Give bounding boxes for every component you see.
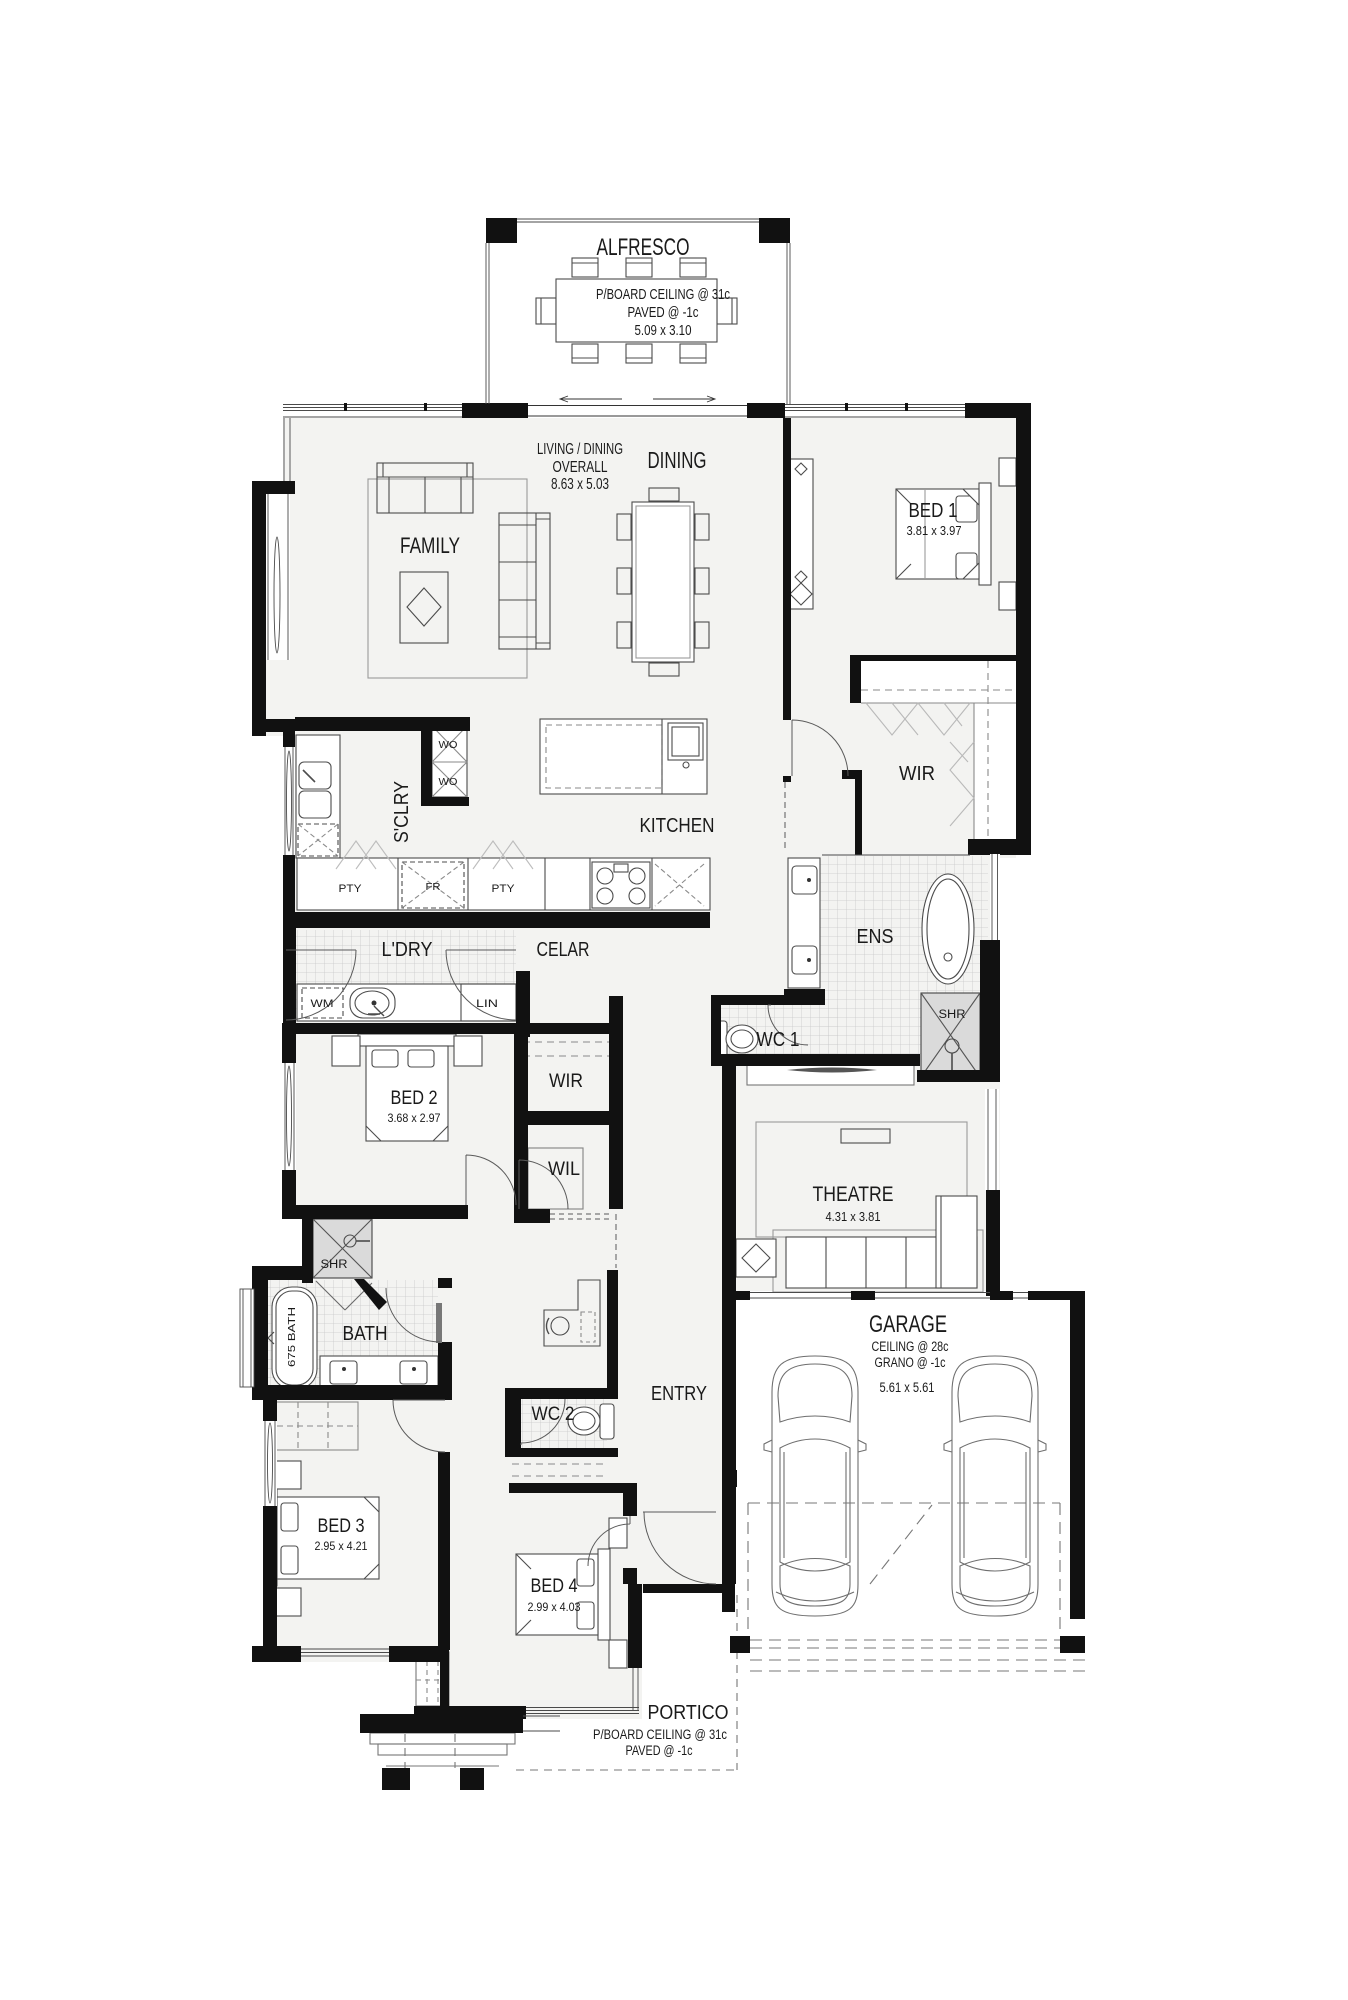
svg-text:4.31 x 3.81: 4.31 x 3.81 bbox=[826, 1210, 881, 1224]
svg-text:BED 3: BED 3 bbox=[318, 1516, 365, 1537]
svg-text:ENS: ENS bbox=[857, 926, 894, 948]
svg-text:675 BATH: 675 BATH bbox=[286, 1307, 298, 1367]
svg-text:OVERALL: OVERALL bbox=[553, 459, 608, 476]
svg-text:5.61 x 5.61: 5.61 x 5.61 bbox=[880, 1380, 935, 1395]
svg-text:GRANO @ -1c: GRANO @ -1c bbox=[875, 1355, 946, 1370]
svg-text:WIR: WIR bbox=[549, 1071, 583, 1092]
svg-text:PAVED @ -1c: PAVED @ -1c bbox=[626, 1743, 693, 1758]
svg-text:LIVING / DINING: LIVING / DINING bbox=[537, 441, 623, 458]
svg-text:PTY: PTY bbox=[339, 883, 363, 895]
svg-text:P/BOARD CEILING @ 31c: P/BOARD CEILING @ 31c bbox=[596, 287, 730, 303]
svg-text:CELAR: CELAR bbox=[537, 939, 590, 961]
svg-text:PAVED @ -1c: PAVED @ -1c bbox=[628, 305, 699, 321]
svg-text:L'DRY: L'DRY bbox=[382, 939, 433, 961]
svg-text:BATH: BATH bbox=[343, 1323, 388, 1345]
svg-text:WO: WO bbox=[439, 776, 458, 788]
svg-text:GARAGE: GARAGE bbox=[869, 1311, 947, 1338]
svg-text:BED 1: BED 1 bbox=[909, 500, 958, 522]
svg-text:WC 2: WC 2 bbox=[532, 1404, 575, 1425]
svg-text:P/BOARD CEILING @ 31c: P/BOARD CEILING @ 31c bbox=[593, 1727, 727, 1742]
svg-text:PORTICO: PORTICO bbox=[648, 1702, 729, 1724]
svg-text:WIL: WIL bbox=[548, 1159, 580, 1180]
svg-text:BED 4: BED 4 bbox=[531, 1576, 578, 1597]
svg-text:WO: WO bbox=[439, 739, 458, 751]
svg-text:3.81 x 3.97: 3.81 x 3.97 bbox=[907, 524, 962, 538]
svg-text:ENTRY: ENTRY bbox=[651, 1383, 707, 1405]
svg-text:PTY: PTY bbox=[492, 883, 516, 895]
svg-text:SHR: SHR bbox=[939, 1009, 966, 1021]
svg-text:2.99 x 4.03: 2.99 x 4.03 bbox=[528, 1600, 581, 1614]
svg-text:ALFRESCO: ALFRESCO bbox=[597, 234, 690, 261]
svg-text:2.95 x 4.21: 2.95 x 4.21 bbox=[315, 1539, 368, 1553]
svg-text:5.09 x 3.10: 5.09 x 3.10 bbox=[635, 323, 692, 339]
svg-text:BED 2: BED 2 bbox=[391, 1088, 438, 1109]
svg-text:SHR: SHR bbox=[321, 1259, 348, 1271]
svg-text:WC 1: WC 1 bbox=[757, 1029, 800, 1051]
svg-text:8.63 x 5.03: 8.63 x 5.03 bbox=[551, 476, 609, 493]
svg-text:WIR: WIR bbox=[899, 763, 935, 785]
svg-text:WM: WM bbox=[311, 998, 334, 1010]
svg-text:S'CLRY: S'CLRY bbox=[391, 781, 413, 843]
svg-text:DINING: DINING bbox=[648, 447, 707, 473]
svg-text:KITCHEN: KITCHEN bbox=[640, 815, 715, 837]
svg-text:LIN: LIN bbox=[476, 998, 498, 1010]
svg-text:THEATRE: THEATRE bbox=[813, 1183, 894, 1206]
svg-text:FAMILY: FAMILY bbox=[400, 533, 460, 558]
svg-text:CEILING @ 28c: CEILING @ 28c bbox=[872, 1339, 949, 1354]
svg-text:FR: FR bbox=[426, 881, 441, 893]
svg-text:3.68 x 2.97: 3.68 x 2.97 bbox=[388, 1111, 441, 1125]
